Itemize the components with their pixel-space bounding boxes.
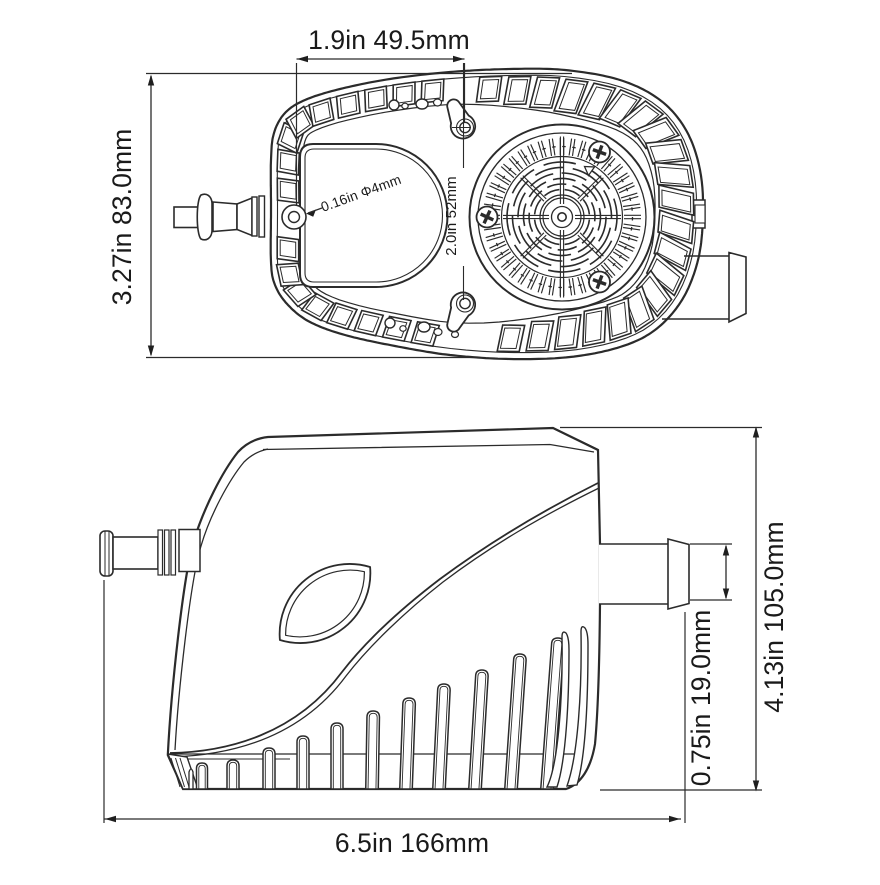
svg-text:2.0in 52mm: 2.0in 52mm (443, 176, 460, 255)
svg-text:6.5in 166mm: 6.5in 166mm (335, 828, 489, 858)
svg-text:3.27in 83.0mm: 3.27in 83.0mm (107, 129, 137, 306)
svg-text:1.9in 49.5mm: 1.9in 49.5mm (308, 25, 470, 55)
svg-text:4.13in 105.0mm: 4.13in 105.0mm (759, 521, 789, 712)
svg-text:0.75in 19.0mm: 0.75in 19.0mm (686, 610, 716, 787)
